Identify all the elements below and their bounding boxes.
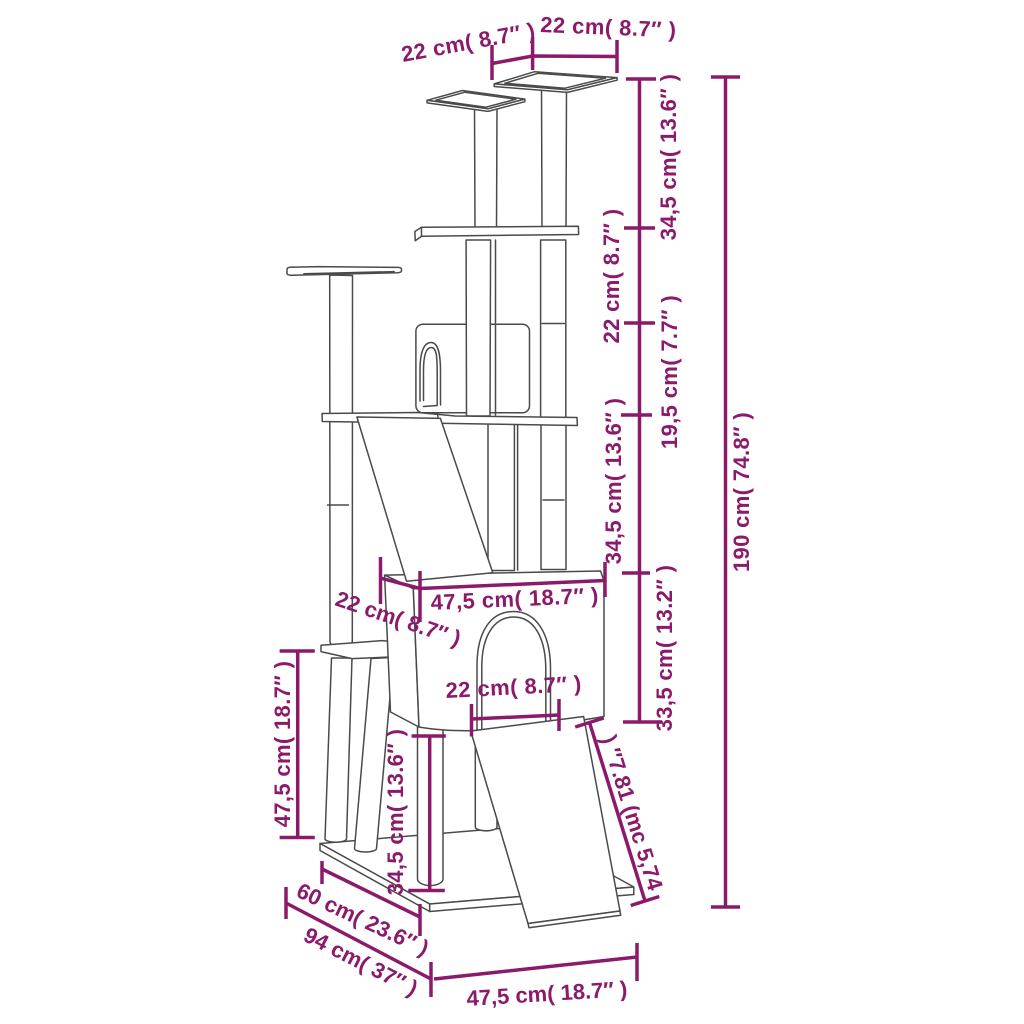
svg-text:34,5 cm( 13.6″ ): 34,5 cm( 13.6″ ) [601, 398, 626, 565]
svg-text:47,5 cm( 18.7″ ): 47,5 cm( 18.7″ ) [270, 661, 295, 828]
svg-text:19,5 cm( 7.7″ ): 19,5 cm( 7.7″ ) [657, 295, 682, 449]
svg-text:34,5 cm( 13.6″ ): 34,5 cm( 13.6″ ) [656, 74, 681, 241]
svg-text:33,5 cm( 13.2″ ): 33,5 cm( 13.2″ ) [652, 565, 677, 732]
svg-text:190 cm( 74.8″ ): 190 cm( 74.8″ ) [729, 412, 754, 572]
svg-text:34,5 cm( 13.6″ ): 34,5 cm( 13.6″ ) [383, 729, 408, 896]
svg-text:22 cm( 8.7″ ): 22 cm( 8.7″ ) [599, 209, 624, 344]
